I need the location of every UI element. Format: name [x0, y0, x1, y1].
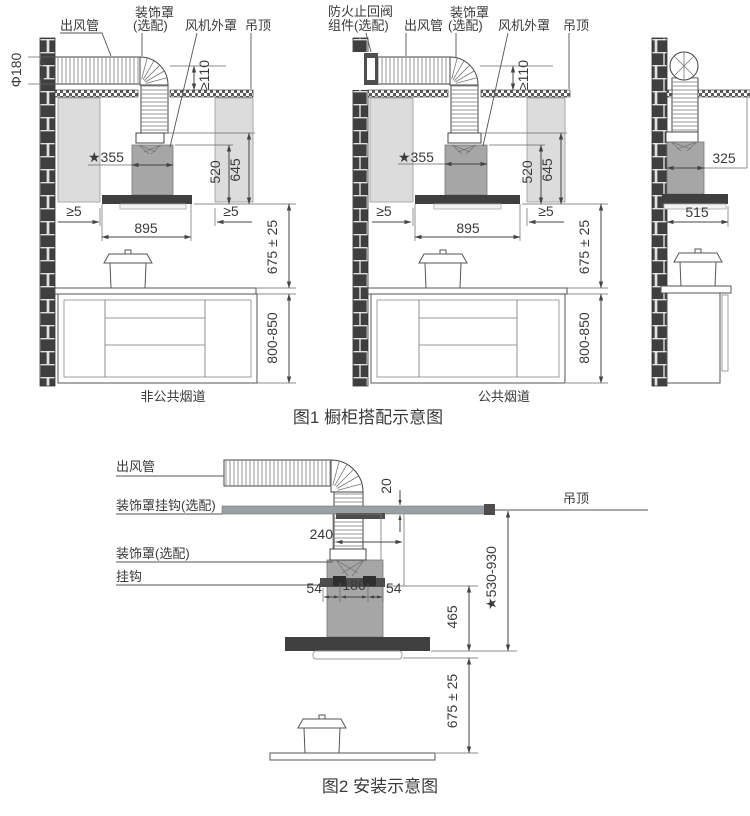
dim-520: 520 [207, 160, 223, 184]
dim-phi180: Φ180 [8, 53, 24, 88]
dim-675: 675 ± 25 [576, 220, 592, 275]
fig1-mid-caption: 公共烟道 [478, 389, 530, 404]
dim-515: 515 [685, 204, 709, 220]
base-cabinet-side [667, 293, 728, 383]
figure1-caption: 图1 橱柜搭配示意图 [293, 408, 443, 427]
dim-star355: ★355 [88, 149, 124, 165]
fig1-mid-label-deco-cover-2: (选配) [448, 18, 483, 33]
dim-675: 675 ± 25 [444, 674, 460, 729]
dim-gap-left: ≥5 [376, 203, 392, 219]
fig1-mid-label-fire-valve-2: 组件(选配) [328, 18, 389, 33]
fig2-label-outlet-pipe: 出风管 [116, 459, 155, 474]
dim-800-850: 800-850 [264, 312, 280, 364]
fig1-mid-label-fan-cover: 风机外罩 [498, 18, 550, 33]
fig1-left-label-outlet-pipe: 出风管 [60, 18, 99, 33]
base-cabinet [371, 294, 565, 383]
fig1-left-label-ceiling: 吊顶 [245, 18, 271, 33]
fig1-left-caption: 非公共烟道 [140, 389, 205, 404]
fig1-mid-label-ceiling: 吊顶 [563, 18, 589, 33]
fan-outer-cover [448, 133, 481, 143]
brick-wall [652, 38, 667, 386]
countertop [661, 286, 731, 293]
dim-star355: ★355 [398, 149, 434, 165]
outlet-duct-side [670, 52, 698, 132]
dim-gap-left: ≥5 [66, 203, 82, 219]
dim-54-right: 54 [386, 580, 402, 596]
fig2-label-ceiling: 吊顶 [563, 491, 589, 506]
fig2-label-deco-cover: 装饰罩(选配) [116, 546, 190, 561]
hood-chimney [445, 145, 487, 195]
hood-chimney [132, 145, 173, 195]
dim-645: 645 [227, 158, 243, 182]
dim-20: 20 [378, 478, 394, 494]
countertop [55, 288, 256, 294]
dim-gap-right: ≥5 [538, 203, 554, 219]
dim-800-850: 800-850 [576, 312, 592, 364]
dim-895: 895 [456, 220, 480, 236]
dim-895: 895 [134, 220, 158, 236]
dim-465: 465 [444, 605, 460, 629]
dim-240: 240 [310, 526, 334, 542]
dim-675: 675 ± 25 [264, 220, 280, 275]
dim-min110: ≥110 [515, 60, 531, 90]
pot [104, 250, 152, 288]
dim-325: 325 [712, 150, 736, 166]
fig1-mid-label-outlet-pipe: 出风管 [404, 18, 443, 33]
figure2-caption: 图2 安装示意图 [322, 777, 438, 796]
fig2-label-deco-cover-hook: 装饰罩挂钩(选配) [116, 498, 216, 513]
fig1-left-label-fan-cover: 风机外罩 [185, 18, 237, 33]
fan-outer-cover [666, 132, 698, 142]
base-cabinet [58, 294, 257, 383]
countertop [270, 753, 435, 760]
pot [419, 250, 467, 288]
dim-645: 645 [539, 158, 555, 182]
brick-wall [353, 38, 369, 386]
installation-diagram-page: 出风管 装饰罩 (选配) 风机外罩 吊顶 Φ180 ≥110 ★355 520 [0, 0, 750, 816]
pot [674, 249, 722, 287]
fig1-mid-label-fire-valve-1: 防火止回阀 [328, 4, 393, 19]
fig2-label-hook: 挂钩 [116, 569, 142, 584]
dim-gap-right: ≥5 [223, 203, 239, 219]
diagram-canvas: 出风管 装饰罩 (选配) 风机外罩 吊顶 Φ180 ≥110 ★355 520 [0, 0, 750, 816]
fire-check-valve [364, 53, 378, 85]
dim-min110: ≥110 [196, 60, 212, 90]
dim-530-930: ★530-930 [483, 546, 499, 610]
brick-wall [40, 38, 55, 386]
fan-outer-cover [136, 133, 164, 143]
dim-520: 520 [519, 160, 535, 184]
fig1-left-label-deco-cover-2: (选配) [133, 18, 168, 33]
dim-186: 186 [342, 577, 366, 593]
dim-54-left: 54 [306, 580, 322, 596]
pot [298, 715, 346, 753]
countertop [368, 288, 567, 294]
